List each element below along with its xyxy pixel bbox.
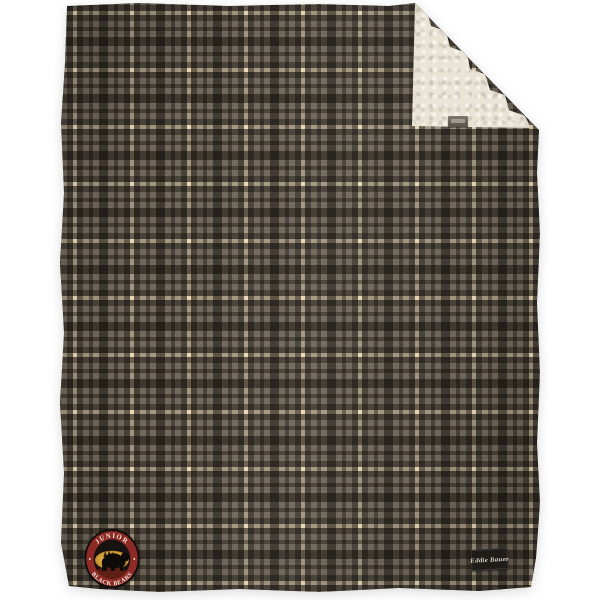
team-patch: JUNIOR BLACK BEARS: [83, 527, 141, 589]
blanket-front: JUNIOR BLACK BEARS Eddie Bauer: [59, 3, 540, 592]
fold-tag-mark: [451, 119, 465, 123]
brand-tag-label: Eddie Bauer: [470, 555, 509, 564]
fold-tag: [448, 116, 468, 127]
brand-tag: Eddie Bauer: [470, 548, 508, 571]
product-photo: JUNIOR BLACK BEARS Eddie Bauer: [0, 0, 600, 600]
blanket: JUNIOR BLACK BEARS Eddie Bauer: [59, 3, 540, 592]
